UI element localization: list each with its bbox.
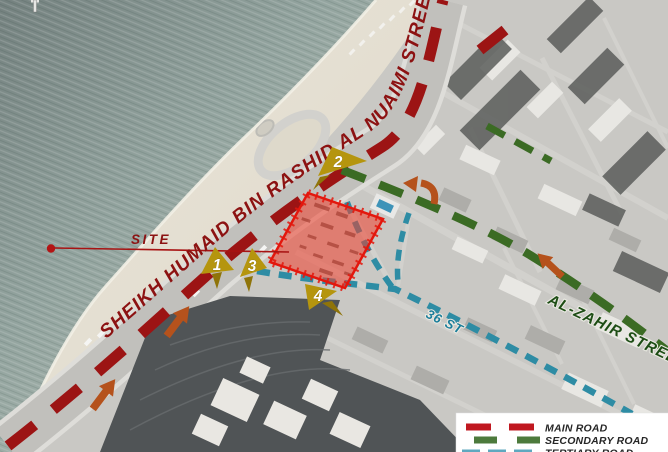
legend-swatch (509, 424, 534, 431)
legend-swatch (474, 437, 497, 444)
marker-4-label: 4 (313, 288, 323, 305)
legend-label: TERTIARY ROAD (545, 448, 634, 452)
legend: MAIN ROAD SECONDARY ROAD TERTIARY ROAD (456, 413, 668, 452)
map-canvas: SITE SHEIKH HUMAID BIN RASHID AL NUAIMI … (0, 0, 668, 452)
legend-label: SECONDARY ROAD (545, 435, 649, 447)
legend-swatch (466, 424, 491, 431)
legend-swatch (517, 437, 540, 444)
marker-1-label: 1 (213, 257, 222, 274)
site-label: SITE (131, 232, 171, 247)
legend-label: MAIN ROAD (545, 423, 608, 435)
marker-3-label: 3 (248, 258, 257, 275)
marker-2-label: 2 (333, 154, 343, 171)
site-analysis-map: SITE SHEIKH HUMAID BIN RASHID AL NUAIMI … (0, 0, 668, 452)
site-leader-dot (47, 244, 55, 252)
